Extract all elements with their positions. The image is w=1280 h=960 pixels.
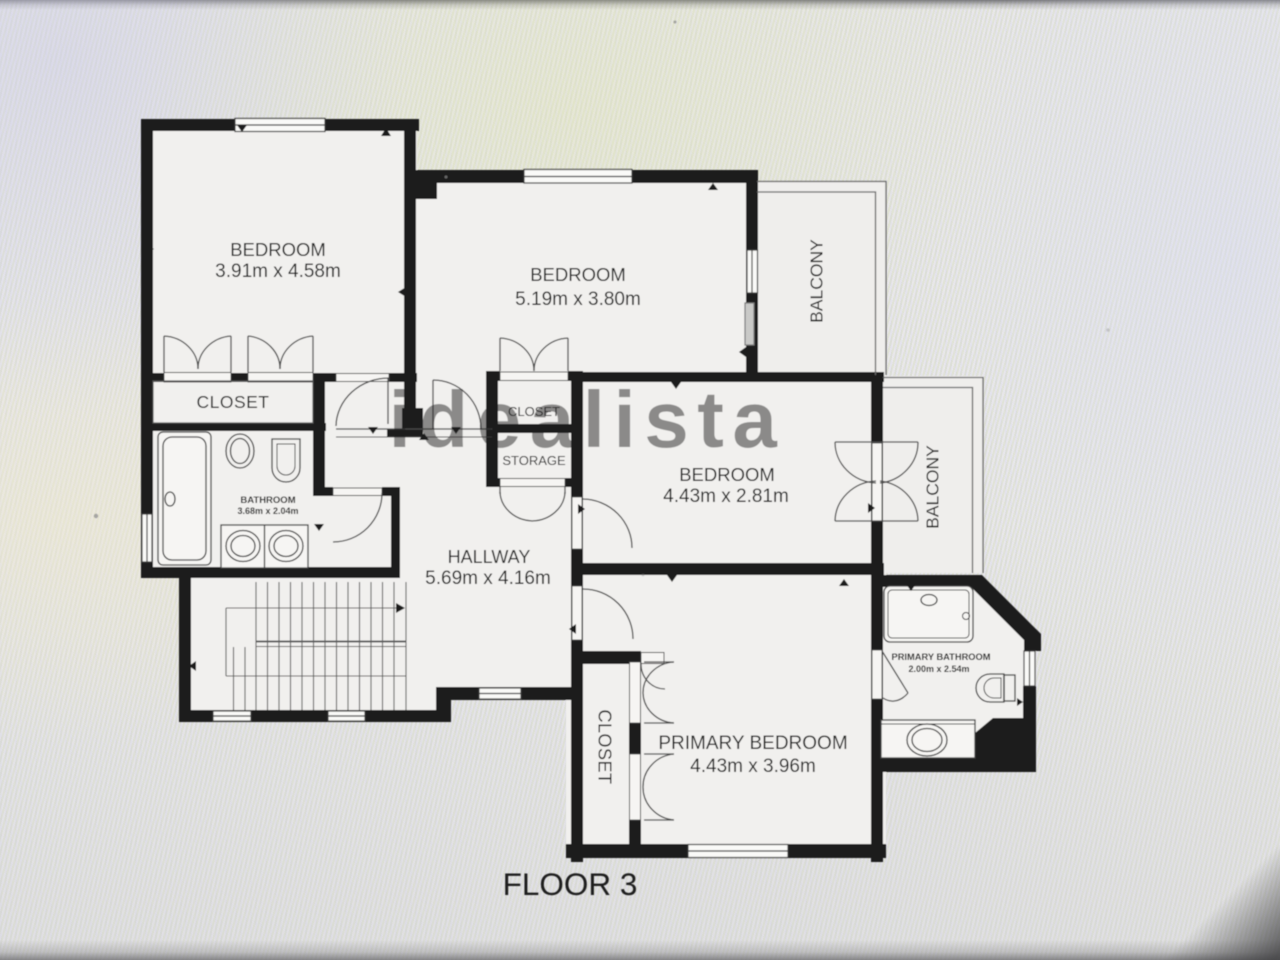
svg-text:BEDROOM: BEDROOM — [530, 264, 626, 285]
svg-text:HALLWAY: HALLWAY — [448, 547, 531, 567]
svg-text:STORAGE: STORAGE — [502, 453, 566, 468]
svg-text:2.00m x 2.54m: 2.00m x 2.54m — [908, 664, 969, 674]
svg-text:BEDROOM: BEDROOM — [230, 239, 326, 260]
svg-text:BALCONY: BALCONY — [923, 445, 943, 529]
svg-text:PRIMARY BEDROOM: PRIMARY BEDROOM — [658, 733, 847, 754]
svg-text:BEDROOM: BEDROOM — [679, 464, 775, 485]
svg-text:BALCONY: BALCONY — [807, 239, 827, 323]
svg-text:CLOSET: CLOSET — [508, 404, 560, 419]
svg-text:idealista: idealista — [389, 375, 786, 464]
svg-text:3.68m x 2.04m: 3.68m x 2.04m — [237, 506, 298, 516]
svg-text:FLOOR 3: FLOOR 3 — [503, 866, 638, 902]
svg-text:CLOSET: CLOSET — [196, 392, 269, 412]
svg-text:5.69m x 4.16m: 5.69m x 4.16m — [425, 568, 551, 589]
svg-text:CLOSET: CLOSET — [594, 709, 614, 784]
svg-text:5.19m x 3.80m: 5.19m x 3.80m — [515, 289, 641, 310]
svg-text:BATHROOM: BATHROOM — [240, 495, 295, 506]
svg-text:PRIMARY BATHROOM: PRIMARY BATHROOM — [892, 652, 991, 662]
svg-text:3.91m x 4.58m: 3.91m x 4.58m — [215, 261, 341, 282]
svg-text:4.43m x 3.96m: 4.43m x 3.96m — [690, 756, 816, 777]
svg-text:4.43m x 2.81m: 4.43m x 2.81m — [663, 486, 789, 507]
